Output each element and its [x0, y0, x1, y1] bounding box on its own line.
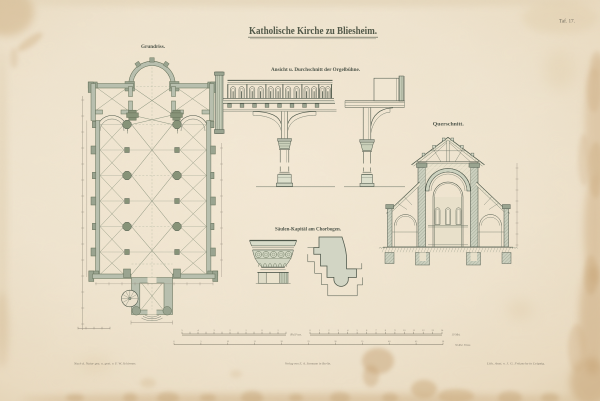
svg-text:10 Met.: 10 Met. — [452, 332, 461, 336]
svg-text:Ansicht u. Durchschnitt der Or: Ansicht u. Durchschnitt der Orgelbühne. — [271, 68, 361, 73]
svg-text:Taf. 17.: Taf. 17. — [559, 18, 575, 25]
svg-text:Nach d. Natur gez. u. gest. v.: Nach d. Natur gez. u. gest. v. F. W. Sch… — [73, 362, 136, 366]
svg-text:Querschnitt.: Querschnitt. — [433, 122, 465, 128]
svg-text:Rhl.Fuss.: Rhl.Fuss. — [289, 332, 302, 336]
svg-text:Lith. Anst. v. J. G. Fritzsche: Lith. Anst. v. J. G. Fritzsche in Leipzi… — [486, 362, 545, 366]
svg-text:50 Rhl. Füsse.: 50 Rhl. Füsse. — [455, 344, 471, 347]
svg-text:Grundriss.: Grundriss. — [141, 44, 166, 50]
svg-text:Verlag von E. A. Seemann in Be: Verlag von E. A. Seemann in Berlin. — [285, 362, 331, 366]
svg-text:Säulen-Kapitäl am Chorbogen.: Säulen-Kapitäl am Chorbogen. — [275, 228, 342, 233]
svg-text:Katholische Kirche zu Blieshei: Katholische Kirche zu Bliesheim. — [249, 26, 377, 37]
